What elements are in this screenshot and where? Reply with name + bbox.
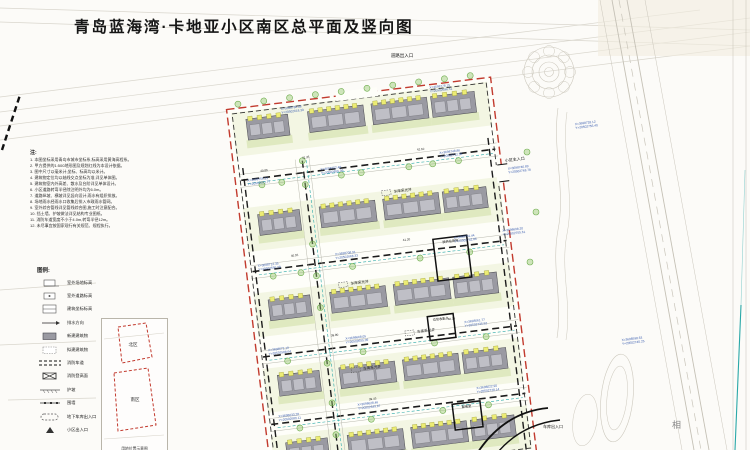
legend-item-label: 拟建建筑物 (67, 347, 88, 353)
building-wing (376, 368, 392, 381)
contour-blob (596, 353, 637, 444)
building-wing (478, 355, 490, 367)
balcony-unit (248, 116, 253, 121)
building-new-icon-part (43, 333, 56, 340)
building-wing (471, 193, 483, 205)
balcony-unit (259, 211, 264, 216)
drawing-sheet: 相换热站用地垃圾收集点配电室车库采光井车库采光井车库采光井车库采光井X=3698… (0, 0, 750, 450)
balcony-unit (384, 359, 389, 364)
balcony-unit (278, 209, 283, 214)
tree-icon (533, 209, 539, 215)
municipal-road-line (612, 0, 694, 450)
balcony-unit (257, 115, 262, 120)
building-wing (366, 292, 382, 305)
contour-blob (604, 365, 631, 431)
balcony-unit (338, 202, 343, 207)
building-wing (458, 195, 470, 207)
balcony-unit (375, 429, 380, 434)
balcony-unit (403, 280, 408, 285)
keymap-south-label: 南区 (131, 396, 140, 402)
fire-pad-icon (37, 371, 63, 381)
balcony-unit (398, 98, 403, 103)
balcony-unit (452, 91, 457, 96)
balcony-unit (288, 371, 293, 376)
building-wing (491, 354, 503, 366)
legend-item-label: 小区出入口 (67, 427, 88, 433)
balcony-unit (410, 193, 415, 198)
utility-cyan-line (741, 170, 745, 305)
building-wing (351, 439, 367, 450)
tree-icon (235, 101, 242, 108)
contour-petal (558, 52, 569, 63)
contour-petal (558, 81, 569, 92)
contour-ring (545, 68, 554, 77)
building-wing (406, 364, 422, 377)
building-wing (386, 203, 402, 216)
balcony-unit (276, 113, 281, 118)
contour-ring (532, 55, 566, 89)
tree-icon (527, 259, 533, 265)
building-wing (375, 108, 391, 121)
building-plan-icon (37, 345, 63, 355)
building-wing (339, 209, 355, 222)
legend-item-label: 室外道路标高 (67, 293, 92, 299)
building-wing (423, 362, 439, 375)
building-wing (356, 207, 372, 220)
adjacent-parcel-label: 相 (672, 419, 681, 430)
balcony-unit (464, 186, 469, 191)
fence-icon-part (56, 402, 58, 404)
legend-item-label: 新建建筑物 (67, 333, 88, 339)
contour-blob (569, 393, 600, 448)
building-wing (250, 124, 261, 136)
balcony-unit (352, 103, 357, 108)
balcony-unit (347, 201, 352, 206)
balcony-unit (401, 194, 406, 199)
slope-icon-part (55, 390, 57, 393)
balcony-unit (288, 208, 293, 213)
road-centerline (619, 0, 701, 450)
building-wing (469, 280, 481, 292)
balcony-unit (307, 369, 312, 374)
balcony-unit (287, 440, 292, 445)
legend-block: 图例: 室外场地标高室外道路标高建筑坐标标高排水方向新建建筑物拟建建筑物消防车道… (37, 266, 101, 437)
page-title: 青岛蓝海湾·卡地亚小区南区总平面及竖向图 (74, 15, 414, 37)
building-wing (343, 372, 359, 385)
garage-entrance-label: 车库出入口 (543, 423, 563, 429)
balcony-unit (297, 438, 302, 443)
garage-entry-icon (37, 412, 63, 422)
slope-icon-part (51, 390, 53, 393)
legend-item-label: 建筑坐标标高 (67, 306, 92, 312)
coord-label: X=3698598.63Y=20502740.25 (621, 335, 645, 346)
building-wing (391, 106, 407, 119)
building-wing (359, 370, 375, 383)
balcony-unit (474, 348, 479, 353)
elev-site-icon (37, 278, 63, 288)
legend-item: 建筑坐标标高 (37, 303, 101, 316)
balcony-unit (366, 430, 371, 435)
building-wing (272, 304, 283, 316)
building-wing (384, 435, 400, 448)
building-wing (414, 431, 430, 444)
balcony-unit (438, 353, 443, 358)
balcony-unit (464, 349, 469, 354)
legend-item: 室外道路标高 (37, 289, 101, 302)
legend-item-label: 室外场地标高 (67, 280, 92, 286)
balcony-unit (357, 286, 362, 291)
offsite-road-dash (2, 95, 20, 150)
tree-icon (467, 72, 474, 79)
main-entrance-label: 小区主入口 (504, 155, 525, 163)
municipal-road-line (645, 0, 727, 450)
legend-item: 室外场地标高 (37, 276, 101, 289)
legend-heading: 图例: (37, 266, 101, 274)
balcony-unit (484, 270, 489, 275)
coord-label: X=3698698.20Y=20502755.61 (502, 226, 526, 237)
flow-arrow-icon-part (56, 321, 60, 325)
tree-icon (389, 82, 396, 89)
building-wing (403, 201, 419, 214)
balcony-unit (442, 92, 447, 97)
balcony-unit (407, 96, 412, 101)
balcony-unit (374, 284, 379, 289)
building-wing (284, 303, 295, 315)
balcony-unit (298, 293, 303, 298)
building-wing (323, 211, 339, 224)
tree-icon (312, 91, 319, 98)
notes-heading: 注: (30, 149, 146, 156)
legend-item: 排水方向 (37, 316, 101, 329)
parcel-group: 换热站用地垃圾收集点配电室车库采光井车库采光井车库采光井车库采光井X=36987… (226, 55, 657, 450)
balcony-unit (474, 185, 479, 190)
balcony-unit (413, 356, 418, 361)
balcony-unit (392, 427, 397, 432)
building-wing (285, 216, 296, 228)
balcony-unit (331, 289, 336, 294)
tree-icon (260, 98, 267, 105)
balcony-unit (455, 419, 460, 424)
balcony-unit (266, 114, 271, 119)
building-wing (293, 378, 304, 390)
balcony-unit (462, 90, 467, 95)
notes-list: 1. 本图坐标采用青岛市城市坐标系,标高采用黄海高程系。2. 甲方提供的1:50… (30, 157, 146, 229)
legend-item-label: 护坡 (67, 387, 75, 393)
municipal-road-line (627, 0, 709, 450)
garage-entry-icon-part (41, 414, 58, 420)
legend-item-label: 消防登高面 (67, 373, 88, 379)
legend-item: 消防车道 (37, 356, 101, 369)
balcony-unit (289, 294, 294, 299)
slope-icon-part (43, 390, 45, 393)
building-wing (333, 296, 349, 309)
balcony-unit (364, 198, 369, 203)
legend-item: 拟建建筑物 (37, 343, 101, 356)
coord-box-icon (37, 304, 63, 314)
building-wing (439, 360, 455, 373)
building-plan-icon-part (43, 347, 56, 354)
balcony-unit (321, 204, 326, 209)
notes-block: 注: 1. 本图坐标采用青岛市城市坐标系,标高采用黄海高程系。2. 甲方提供的1… (30, 149, 146, 229)
balcony-unit (309, 108, 314, 113)
elev-site-icon-part (44, 280, 55, 286)
coord-label: X=3698728.12Y=20502756.40 (575, 119, 599, 130)
building-wing (273, 121, 284, 133)
balcony-unit (430, 354, 435, 359)
balcony-unit (421, 355, 426, 360)
coord-label: X=3698746.89Y=20502748.78 (508, 164, 532, 175)
tree-icon (286, 94, 293, 101)
building-wing (430, 284, 446, 297)
building-wing (434, 101, 446, 113)
tree-icon (415, 79, 422, 86)
balcony-unit (279, 296, 284, 301)
note-line: 12. 未尽事宜按国家现行有关规范、规程执行。 (30, 223, 146, 229)
balcony-unit (348, 287, 353, 292)
keymap-north-label: 北区 (129, 341, 138, 348)
balcony-unit (395, 281, 400, 286)
balcony-unit (427, 191, 432, 196)
balcony-unit (493, 346, 498, 351)
municipal-road-line (600, 0, 682, 450)
building-wing (431, 429, 447, 442)
legend-item: 新建建筑物 (37, 330, 101, 343)
building-wing (261, 219, 272, 231)
flow-arrow-icon (37, 318, 63, 328)
legend-item: 消防登高面 (37, 370, 101, 383)
keymap-road-line (104, 333, 164, 339)
balcony-unit (412, 424, 417, 429)
balcony-unit (355, 200, 360, 205)
balcony-unit (384, 196, 389, 201)
balcony-unit (390, 99, 395, 104)
keymap-canvas: 北区 南区 (102, 319, 166, 445)
balcony-unit (383, 428, 388, 433)
balcony-unit (432, 93, 437, 98)
balcony-unit (318, 107, 323, 112)
balcony-unit (357, 431, 362, 436)
contour-petal (529, 81, 540, 92)
contour-ring (524, 47, 574, 97)
balcony-unit (298, 370, 303, 375)
legend-list: 室外场地标高室外道路标高建筑坐标标高排水方向新建建筑物拟建建筑物消防车道消防登高… (37, 276, 101, 437)
contour-line (556, 108, 561, 338)
balcony-unit (270, 297, 275, 302)
balcony-unit (492, 414, 497, 419)
building-wing (456, 282, 468, 294)
balcony-unit (502, 413, 507, 418)
legend-item: 地下车库出入口 (37, 410, 101, 423)
balcony-unit (393, 195, 398, 200)
balcony-unit (366, 285, 371, 290)
building-wing (281, 380, 292, 392)
balcony-unit (447, 351, 452, 356)
elev-road-icon (37, 291, 63, 301)
balcony-unit (429, 277, 434, 282)
building-wing (397, 288, 413, 301)
legend-item: 小区出入口 (37, 423, 101, 436)
building-wing (446, 196, 458, 208)
right-landscape-layer: 相 (523, 0, 750, 450)
entry-icon (37, 425, 63, 435)
building-wing (408, 104, 424, 117)
building-wing (419, 199, 435, 212)
balcony-unit (349, 432, 354, 437)
building-wing (273, 217, 284, 229)
building-new-icon (37, 331, 63, 341)
balcony-unit (472, 417, 477, 422)
building-wing (466, 357, 478, 369)
building-wing (350, 294, 366, 307)
balcony-unit (454, 187, 459, 192)
contour-line (565, 112, 570, 340)
legend-item-label: 地下车库出入口 (67, 414, 96, 420)
balcony-unit (430, 422, 435, 427)
contour-petal (529, 52, 540, 63)
fence-icon-part (44, 402, 46, 404)
road-entrance-label: 道路出入口 (391, 52, 414, 59)
building-wing (447, 99, 459, 111)
balcony-unit (373, 101, 378, 106)
fence-icon (37, 398, 63, 408)
building-wing (459, 98, 471, 110)
building-wing (311, 116, 327, 129)
balcony-unit (483, 347, 488, 352)
building-wing (482, 278, 494, 290)
balcony-unit (416, 95, 421, 100)
legend-item-label: 消防车道 (67, 360, 84, 366)
balcony-unit (326, 106, 331, 111)
fire-lane-icon (37, 358, 63, 368)
balcony-unit (421, 423, 426, 428)
legend-item-label: 围墙 (67, 400, 75, 406)
building-wing (344, 111, 360, 124)
balcony-unit (340, 288, 345, 293)
balcony-unit (444, 189, 449, 194)
legend-item: 围墙 (37, 397, 101, 410)
balcony-unit (447, 420, 452, 425)
balcony-unit (341, 365, 346, 370)
balcony-unit (438, 421, 443, 426)
building-wing (367, 437, 383, 450)
balcony-unit (343, 104, 348, 109)
tree-icon (441, 75, 448, 82)
balcony-unit (329, 203, 334, 208)
balcony-unit (316, 436, 321, 441)
tree-icon (524, 149, 530, 155)
balcony-unit (335, 105, 340, 110)
slope-icon (37, 385, 63, 395)
fence-icon-part (50, 402, 52, 404)
balcony-unit (279, 372, 284, 377)
elev-road-icon-part (49, 295, 51, 297)
balcony-unit (381, 100, 386, 105)
balcony-unit (269, 210, 274, 215)
balcony-unit (404, 357, 409, 362)
location-keymap: 北区 南区 用地位置示意图 (101, 318, 168, 450)
entry-icon-part (46, 427, 54, 433)
building-wing (296, 301, 307, 313)
legend-item-label: 排水方向 (67, 320, 84, 326)
legend-item: 护坡 (37, 383, 101, 396)
utility-cyan-line (735, 305, 741, 450)
balcony-unit (419, 192, 424, 197)
balcony-unit (412, 279, 417, 284)
balcony-unit (474, 272, 479, 277)
balcony-unit (306, 437, 311, 442)
building-wing (261, 122, 272, 134)
slope-icon-part (47, 390, 49, 393)
keymap-road-line (104, 435, 164, 439)
building-wing (413, 286, 429, 299)
building-wing (328, 114, 344, 127)
balcony-unit (421, 278, 426, 283)
fire-pad-icon-part (43, 373, 56, 379)
building-wing (305, 377, 316, 389)
